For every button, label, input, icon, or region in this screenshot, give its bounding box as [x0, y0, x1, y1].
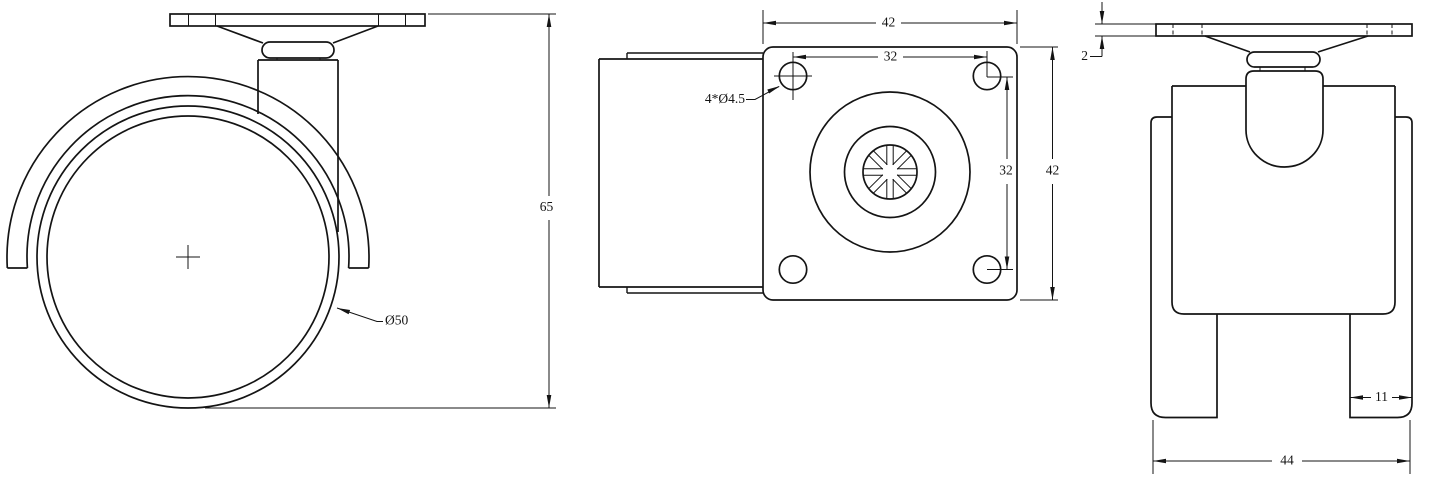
- top-swivel-outer-circle: [810, 92, 970, 252]
- front-swivel-bearing: [1247, 52, 1320, 67]
- top-bolt-hole-bl: [779, 256, 806, 283]
- dim-text-overall-width: 44: [1280, 453, 1294, 468]
- side-swivel-cone-left: [217, 26, 263, 43]
- dim-text-overall-height: 65: [540, 199, 554, 214]
- side-swivel-bearing: [262, 42, 334, 58]
- dim-plate-depth: 42: [1020, 47, 1059, 300]
- top-swivel-inner-circle: [845, 127, 936, 218]
- dim-text-wheel-width: 11: [1375, 389, 1388, 404]
- dim-text-mounting-hole-callout: 4*Ø4.5: [705, 91, 745, 106]
- front-swivel-cone-right: [1318, 36, 1368, 52]
- side-mounting-plate: [170, 14, 425, 26]
- front-right-wheel: [1350, 117, 1412, 418]
- dim-text-hole-spacing-vertical: 32: [999, 163, 1013, 178]
- drawing-canvas: 65 Ø50: [0, 0, 1443, 488]
- side-view: 65 Ø50: [7, 14, 556, 408]
- caster-technical-drawing: 65 Ø50: [0, 0, 1443, 488]
- dim-text-hole-spacing-horizontal: 32: [884, 49, 898, 64]
- side-stem: [258, 60, 338, 232]
- top-wheel-body: [599, 53, 763, 293]
- front-plate-hole-ticks: [1173, 24, 1392, 36]
- dim-text-plate-width: 42: [882, 15, 896, 30]
- dim-plate-thickness: 2: [1081, 2, 1156, 63]
- front-swivel-cone-left: [1205, 36, 1250, 52]
- front-mounting-plate: [1156, 24, 1412, 36]
- dim-plate-width: 42: [763, 10, 1017, 44]
- side-wheel-center-cross: [176, 245, 200, 269]
- dim-text-wheel-diameter: Ø50: [385, 313, 408, 328]
- top-hub-circle: [863, 145, 917, 199]
- top-mounting-plate: [763, 47, 1017, 300]
- dim-mounting-hole-callout: 4*Ø4.5: [705, 86, 780, 106]
- side-swivel-cone-right: [333, 26, 378, 43]
- dim-text-plate-thickness: 2: [1081, 48, 1088, 63]
- dim-hole-spacing-vertical: 32: [999, 77, 1013, 270]
- dim-wheel-width: 11: [1350, 389, 1412, 404]
- front-view: 2 11 44: [1081, 2, 1412, 474]
- side-hood-inner-arc: [27, 96, 349, 268]
- dim-overall-height: 65: [540, 14, 554, 408]
- front-left-wheel: [1151, 117, 1217, 418]
- front-stem-housing: [1246, 71, 1323, 167]
- top-view: 42 32 32 42: [599, 10, 1059, 300]
- side-plate-hole-ticks: [189, 14, 406, 26]
- dim-overall-width: 44: [1153, 420, 1410, 474]
- top-hub-spokes: [864, 146, 917, 199]
- dim-wheel-diameter: Ø50: [337, 308, 408, 328]
- dim-text-plate-depth: 42: [1046, 163, 1060, 178]
- dim-hole-spacing-horizontal: 32: [793, 49, 987, 64]
